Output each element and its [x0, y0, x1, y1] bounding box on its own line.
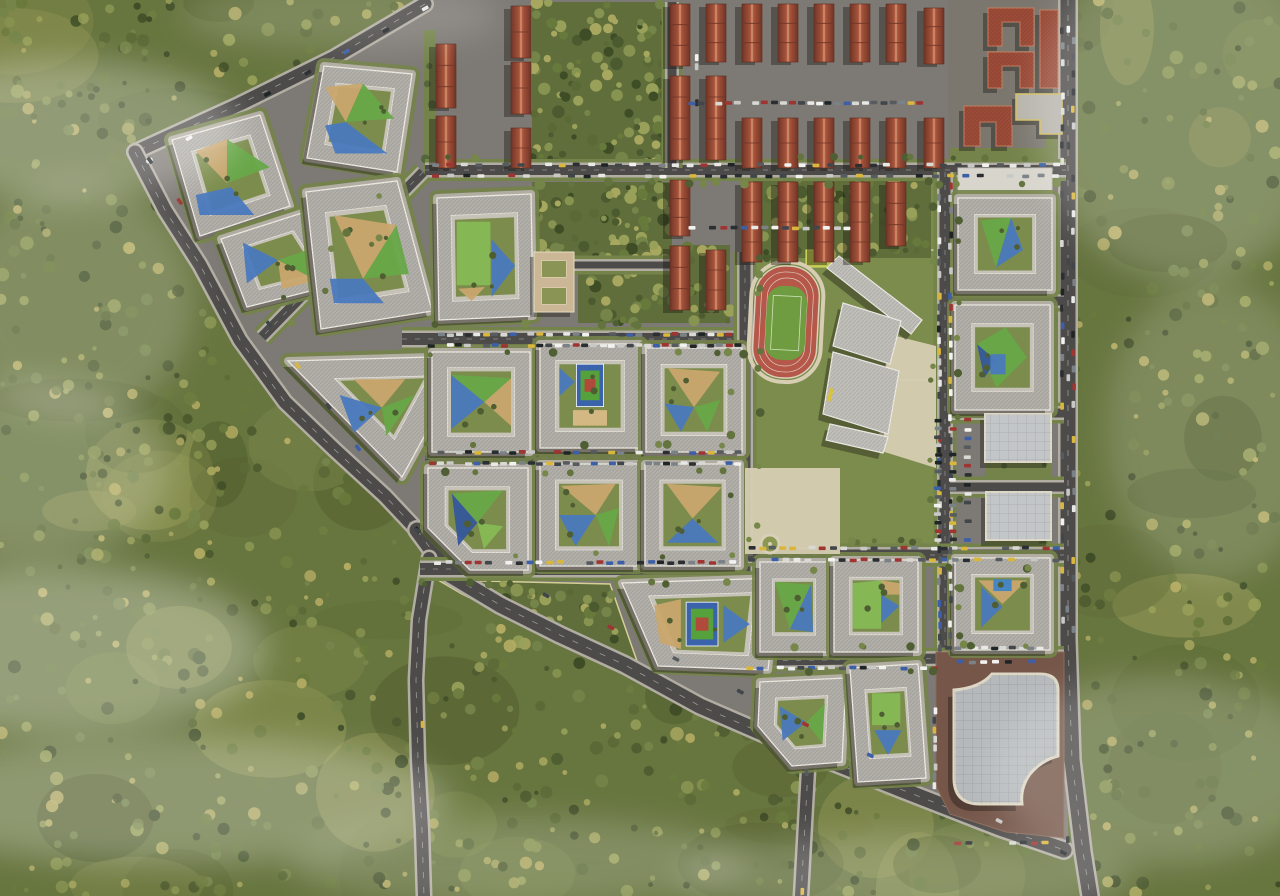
parked-car [1060, 502, 1064, 509]
parked-car [546, 462, 553, 466]
parked-car [1052, 559, 1059, 563]
parked-car [1072, 626, 1076, 633]
parked-car [455, 343, 462, 347]
parked-car [698, 344, 705, 348]
parked-car [500, 451, 507, 455]
parked-car [907, 558, 914, 562]
parked-car [933, 782, 937, 789]
parked-car [729, 560, 736, 564]
parked-car [717, 450, 724, 454]
parked-car [937, 578, 941, 585]
parked-car [938, 634, 942, 641]
parked-car [1002, 546, 1009, 550]
parked-car [932, 175, 939, 179]
parked-car [873, 558, 880, 562]
parked-car [794, 558, 801, 562]
parked-car [883, 163, 890, 167]
parked-car [527, 561, 534, 565]
parked-car [643, 163, 650, 167]
parked-car [933, 773, 937, 780]
parked-car [663, 462, 670, 466]
parked-car [849, 666, 856, 670]
parked-car [728, 163, 735, 167]
parked-car [1071, 262, 1075, 269]
parked-car [536, 344, 543, 348]
parked-car [563, 461, 570, 465]
parked-car [509, 462, 516, 466]
parked-car [937, 304, 941, 311]
parked-car [546, 561, 553, 565]
parked-car [563, 344, 570, 348]
parked-car [1010, 164, 1017, 168]
parked-car [870, 164, 877, 168]
parked-car [949, 183, 953, 190]
parked-car [725, 333, 732, 337]
townhouse-row [924, 8, 944, 64]
parked-car [926, 163, 933, 167]
parked-car [761, 101, 768, 105]
parked-car [935, 419, 942, 423]
parked-car [421, 721, 425, 728]
townhouse-row [850, 4, 870, 62]
parked-car [935, 470, 942, 474]
parked-car [789, 547, 796, 551]
parked-car [455, 561, 462, 565]
parked-car [463, 174, 470, 178]
parked-car [784, 163, 791, 167]
parked-car [483, 333, 490, 337]
parked-car [950, 461, 957, 465]
parked-car [901, 667, 908, 671]
parked-car [789, 101, 796, 105]
parked-car [1053, 546, 1060, 550]
masterplan-stage [0, 0, 1280, 896]
parked-car [765, 175, 772, 179]
townhouse-row [886, 4, 906, 62]
parked-car [491, 462, 498, 466]
townhouse-row [706, 4, 726, 62]
parked-car [519, 450, 526, 454]
parked-car [1060, 305, 1064, 312]
parked-car [935, 521, 942, 525]
parked-car [573, 332, 580, 336]
parked-car [681, 461, 688, 465]
parked-car [804, 769, 808, 776]
parked-car [1008, 558, 1015, 562]
parked-car [1060, 240, 1064, 247]
parked-car [834, 102, 841, 106]
parked-car [554, 462, 561, 466]
townhouse-row [670, 180, 690, 236]
parked-car [492, 343, 499, 347]
parked-car [949, 341, 953, 348]
parked-car [1071, 557, 1075, 564]
parked-car [465, 561, 472, 565]
parked-car [886, 174, 893, 178]
parked-car [678, 561, 685, 565]
parked-car [964, 464, 971, 468]
parked-car [949, 437, 953, 444]
parked-car [938, 546, 942, 553]
parked-car [689, 174, 696, 178]
parked-car [1072, 575, 1076, 582]
townhouse-row [814, 4, 834, 62]
parked-car [689, 102, 696, 106]
parked-car [434, 561, 441, 565]
parked-car [637, 561, 644, 565]
parked-car [581, 344, 588, 348]
parked-car [1071, 349, 1075, 356]
parked-car [726, 450, 733, 454]
parked-car [869, 666, 876, 670]
parked-car [1061, 518, 1065, 525]
parked-car [937, 392, 941, 399]
parked-car [437, 461, 444, 465]
parked-car [750, 174, 757, 178]
parked-car [429, 462, 436, 466]
parked-car [949, 453, 956, 457]
parked-car [465, 462, 472, 466]
parked-car [918, 558, 925, 562]
parked-car [1028, 660, 1035, 664]
parked-car [475, 163, 482, 167]
parked-car [761, 226, 768, 230]
parked-car [969, 661, 976, 665]
parked-car [964, 501, 971, 505]
parked-car [948, 414, 952, 421]
parked-car [705, 174, 712, 178]
parked-car [735, 174, 742, 178]
parked-car [447, 343, 454, 347]
parked-car [546, 333, 553, 337]
parked-car [1066, 606, 1070, 613]
parked-car [446, 560, 453, 564]
parked-car [645, 175, 652, 179]
parked-car [843, 227, 850, 231]
parked-car [1072, 366, 1076, 373]
parked-car [1022, 175, 1029, 179]
parked-car [949, 521, 956, 525]
parked-car [759, 547, 766, 551]
parked-car [839, 667, 846, 671]
parked-car [584, 175, 591, 179]
parked-car [827, 163, 834, 167]
parked-car [528, 344, 535, 348]
parked-car [860, 547, 867, 551]
parked-car [505, 561, 512, 565]
beige-building [530, 252, 574, 317]
parked-car [938, 568, 942, 575]
parked-car [937, 337, 941, 344]
parked-car [475, 561, 482, 565]
parked-car [1071, 228, 1075, 235]
parked-car [698, 560, 705, 564]
parked-car [680, 333, 687, 337]
parked-car [618, 344, 625, 348]
parked-car [735, 450, 742, 454]
parked-car [949, 389, 953, 396]
townhouse-row [670, 246, 690, 310]
parked-car [839, 558, 846, 562]
parked-car [635, 343, 642, 347]
parked-car [1043, 547, 1050, 551]
parked-car [911, 546, 918, 550]
parked-car [717, 461, 724, 465]
parked-car [519, 461, 526, 465]
parked-car [573, 451, 580, 455]
parked-car [1061, 289, 1065, 296]
parked-car [554, 174, 561, 178]
parked-car [432, 163, 439, 167]
parked-car [856, 174, 863, 178]
parked-car [997, 163, 1004, 167]
parked-car [844, 102, 851, 106]
parked-car [1060, 584, 1064, 591]
parked-car [717, 333, 724, 337]
parked-car [617, 451, 624, 455]
parked-car [948, 195, 952, 202]
parked-car [636, 451, 643, 455]
parked-car [672, 163, 679, 167]
parked-car [663, 451, 670, 455]
parked-car [491, 333, 498, 337]
parked-car [608, 451, 615, 455]
parked-car [901, 546, 908, 550]
parked-car [680, 343, 687, 347]
parked-car [508, 174, 515, 178]
parked-car [950, 427, 957, 431]
parked-car [861, 558, 868, 562]
parked-car [714, 163, 721, 167]
parked-car [600, 344, 607, 348]
parked-car [596, 560, 603, 564]
parked-car [955, 163, 962, 167]
parked-car [1060, 370, 1064, 377]
parked-car [812, 164, 819, 168]
parked-car [938, 370, 942, 377]
parked-car [950, 538, 957, 542]
parked-car [937, 480, 941, 487]
parked-car [828, 666, 835, 670]
parked-car [964, 538, 971, 542]
parked-car [564, 451, 571, 455]
parked-car [974, 558, 981, 562]
parked-car [826, 174, 833, 178]
parked-car [708, 333, 715, 337]
parked-car [671, 462, 678, 466]
parked-car [1072, 488, 1076, 495]
parked-car [629, 163, 636, 167]
parked-car [933, 727, 937, 734]
parked-car [1061, 534, 1065, 541]
parked-car [1061, 337, 1065, 344]
parked-car [653, 333, 660, 337]
parked-car [648, 560, 655, 564]
parked-car [934, 435, 941, 439]
parked-car [798, 101, 805, 105]
parked-car [949, 584, 953, 591]
parked-car [689, 226, 696, 230]
parked-car [473, 462, 480, 466]
parked-car [1060, 452, 1064, 459]
parked-car [653, 462, 660, 466]
parked-car [608, 344, 615, 348]
parked-car [962, 174, 969, 178]
parked-car [855, 164, 862, 168]
parked-car [840, 547, 847, 551]
parked-car [757, 667, 764, 671]
parked-car [716, 343, 723, 347]
parked-car [447, 333, 454, 337]
parked-car [949, 572, 953, 579]
masterplan-aerial-view [0, 0, 1280, 896]
parked-car [528, 461, 535, 465]
parked-car [586, 561, 593, 565]
parked-car [937, 348, 941, 355]
parked-car [1067, 374, 1071, 381]
parked-car [871, 547, 878, 551]
parked-car [949, 328, 953, 335]
parked-car [734, 462, 741, 466]
parked-car [609, 462, 616, 466]
parked-car [1072, 401, 1076, 408]
parked-car [938, 358, 942, 365]
parked-car [964, 418, 971, 422]
parked-car [965, 428, 972, 432]
parked-car [1013, 546, 1020, 550]
parked-car [438, 333, 445, 337]
parked-car [954, 647, 961, 651]
parked-car [796, 175, 803, 179]
parked-car [949, 487, 956, 491]
parked-car [949, 207, 953, 214]
parked-car [627, 333, 634, 337]
parked-car [746, 667, 753, 671]
parked-car [707, 344, 714, 348]
parked-car [949, 353, 953, 360]
parked-car [850, 559, 857, 563]
parked-car [725, 101, 732, 105]
parked-car [945, 646, 952, 650]
parked-car [492, 450, 499, 454]
parked-car [500, 333, 507, 337]
parked-car [699, 451, 706, 455]
parked-car [964, 483, 971, 487]
parked-car [934, 764, 938, 771]
parked-car [949, 267, 953, 274]
parked-car [536, 332, 543, 336]
parked-car [720, 226, 727, 230]
parked-car [948, 632, 952, 639]
parked-car [644, 344, 651, 348]
parked-car [949, 304, 953, 311]
parked-car [573, 163, 580, 167]
parked-car [937, 315, 941, 322]
parked-car [949, 530, 956, 534]
parked-car [828, 558, 835, 562]
parked-car [615, 164, 622, 168]
parked-car [938, 293, 942, 300]
parked-car [830, 546, 837, 550]
parked-car [708, 451, 715, 455]
parked-car [645, 461, 652, 465]
parked-car [935, 453, 942, 457]
parked-car [653, 344, 660, 348]
parked-car [871, 175, 878, 179]
parked-car [965, 492, 972, 496]
parked-car [934, 707, 938, 714]
parked-car [545, 163, 552, 167]
parked-car [709, 226, 716, 230]
parked-car [937, 259, 941, 266]
parked-car [934, 504, 941, 508]
parked-car [545, 344, 552, 348]
parked-car [792, 227, 799, 231]
parked-car [535, 561, 542, 565]
parked-car [813, 226, 820, 230]
parked-car [1072, 470, 1076, 477]
parked-car [895, 558, 902, 562]
parked-car [1061, 322, 1065, 329]
parked-car [483, 344, 490, 348]
parked-car [931, 547, 938, 551]
parked-car [964, 455, 971, 459]
parked-car [456, 451, 463, 455]
parked-car [961, 547, 968, 551]
parked-car [1007, 174, 1014, 178]
parked-car [881, 101, 888, 105]
parked-car [879, 666, 886, 670]
parked-car [627, 344, 634, 348]
parked-car [999, 646, 1006, 650]
parked-car [937, 600, 941, 607]
parked-car [933, 717, 937, 724]
parked-car [937, 326, 941, 333]
parked-car [965, 519, 972, 523]
parked-car [940, 164, 947, 168]
parked-car [1037, 647, 1044, 651]
parked-car [752, 101, 759, 105]
parked-car [627, 462, 634, 466]
parked-car [477, 174, 484, 178]
parked-car [935, 529, 942, 533]
parked-car [957, 660, 964, 664]
parked-car [852, 102, 859, 106]
parked-car [726, 344, 733, 348]
parked-car [977, 174, 984, 178]
parked-car [964, 445, 971, 449]
parked-car [992, 660, 999, 664]
parked-car [1061, 617, 1065, 624]
townhouse-row [886, 182, 906, 246]
parked-car [819, 547, 826, 551]
parked-car [934, 538, 941, 542]
parked-car [1061, 273, 1065, 280]
parked-car [689, 451, 696, 455]
parked-car [890, 101, 897, 105]
parked-car [734, 343, 741, 347]
parked-car [709, 561, 716, 565]
parked-car [981, 646, 988, 650]
parked-car [884, 559, 891, 563]
parked-car [870, 101, 877, 105]
parked-car [1005, 660, 1012, 664]
parked-car [1061, 567, 1065, 574]
parked-car [527, 332, 534, 336]
parked-car [509, 451, 516, 455]
parked-car [559, 164, 566, 168]
parked-car [635, 333, 642, 337]
